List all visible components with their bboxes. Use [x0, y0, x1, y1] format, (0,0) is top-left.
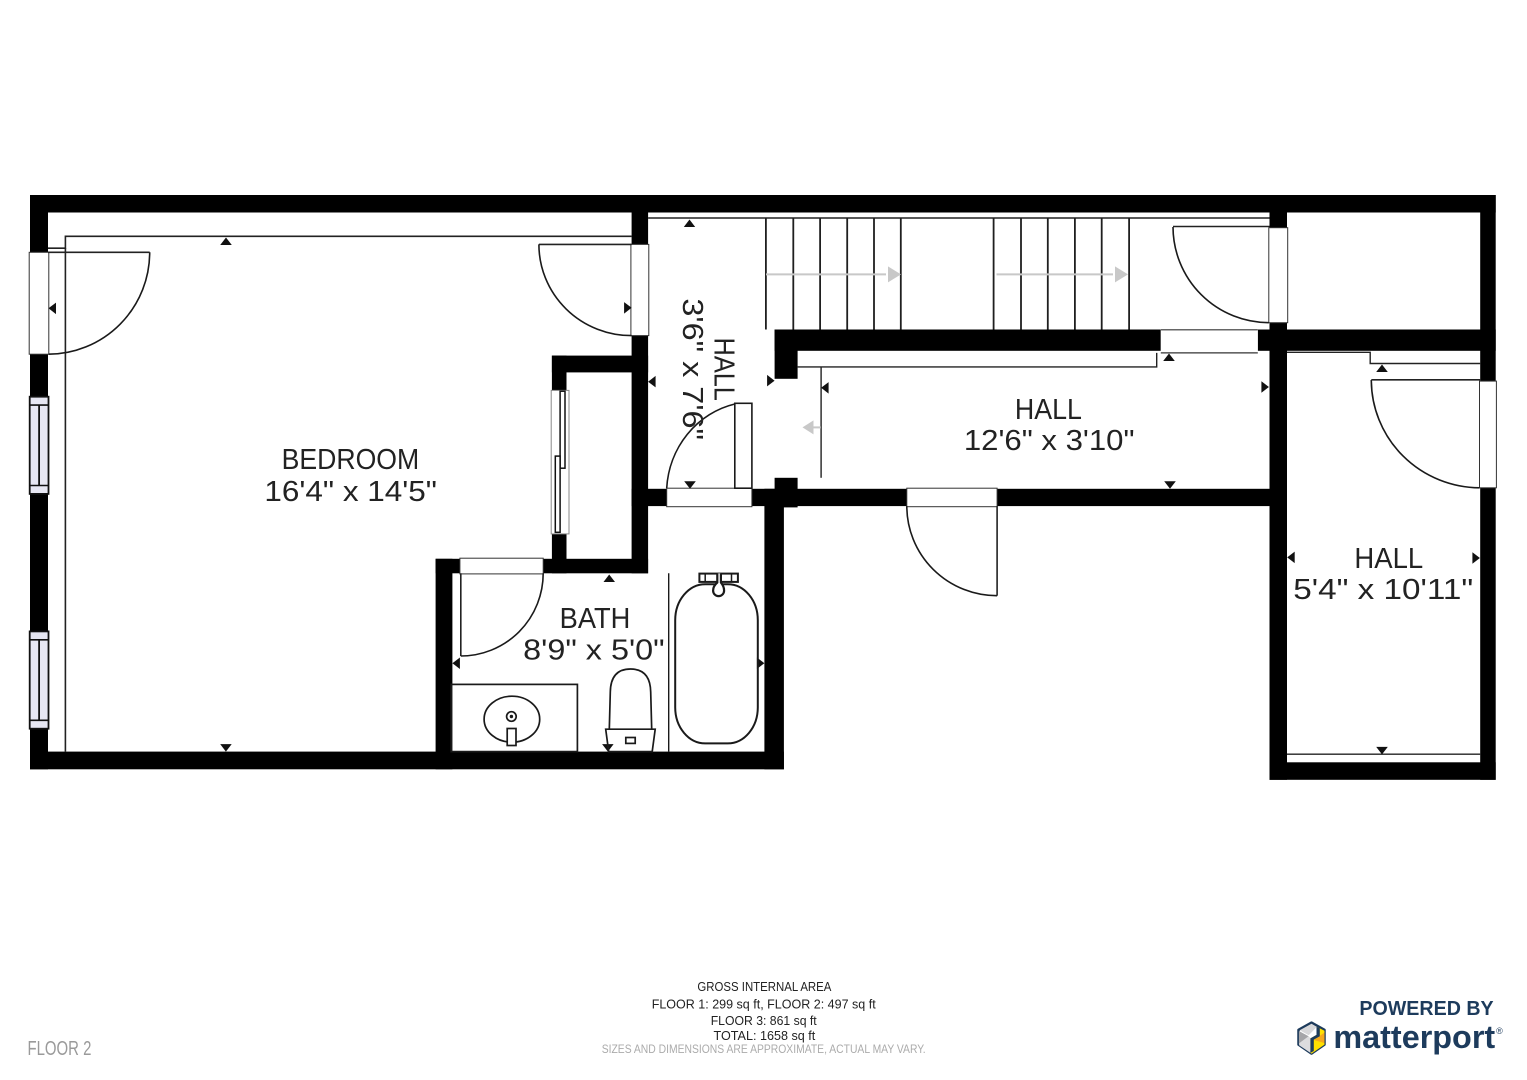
- svg-text:BATH: BATH: [560, 603, 631, 635]
- svg-text:TOTAL: 1658 sq ft: TOTAL: 1658 sq ft: [714, 1029, 816, 1043]
- svg-text:5'4" x 10'11": 5'4" x 10'11": [1293, 574, 1473, 606]
- svg-text:matterport: matterport: [1333, 1019, 1495, 1055]
- svg-text:BEDROOM: BEDROOM: [282, 444, 420, 476]
- svg-text:HALL: HALL: [708, 338, 740, 401]
- svg-text:12'6" x 3'10": 12'6" x 3'10": [964, 425, 1135, 457]
- svg-text:FLOOR 1: 299 sq ft, FLOOR 2: 4: FLOOR 1: 299 sq ft, FLOOR 2: 497 sq ft: [652, 998, 877, 1012]
- svg-text:16'4" x 14'5": 16'4" x 14'5": [264, 476, 437, 508]
- svg-text:GROSS INTERNAL AREA: GROSS INTERNAL AREA: [697, 980, 832, 994]
- svg-text:HALL: HALL: [1354, 543, 1423, 575]
- svg-text:FLOOR 2: FLOOR 2: [28, 1038, 92, 1060]
- svg-text:HALL: HALL: [1015, 394, 1082, 426]
- svg-text:®: ®: [1496, 1026, 1503, 1036]
- svg-text:SIZES AND DIMENSIONS ARE APPRO: SIZES AND DIMENSIONS ARE APPROXIMATE, AC…: [602, 1044, 926, 1056]
- svg-text:POWERED BY: POWERED BY: [1359, 998, 1494, 1020]
- svg-text:8'9" x 5'0": 8'9" x 5'0": [523, 635, 664, 667]
- svg-text:FLOOR 3: 861 sq ft: FLOOR 3: 861 sq ft: [711, 1014, 818, 1028]
- svg-text:3'6" x 7'6": 3'6" x 7'6": [676, 298, 708, 440]
